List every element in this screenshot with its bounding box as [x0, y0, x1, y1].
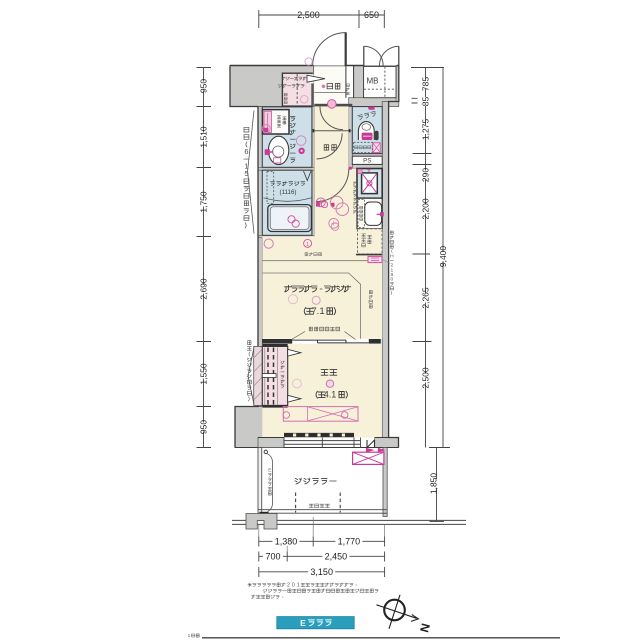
svg-text:85: 85 — [420, 97, 430, 107]
svg-text:2: 2 — [287, 582, 290, 588]
svg-text:1,850: 1,850 — [428, 473, 438, 495]
svg-text:0: 0 — [292, 582, 295, 588]
svg-text:290: 290 — [420, 168, 430, 182]
svg-text:785: 785 — [420, 77, 430, 91]
svg-text:0: 0 — [391, 277, 394, 283]
svg-text:950: 950 — [198, 420, 208, 434]
svg-text:MB: MB — [367, 77, 379, 86]
svg-text:700: 700 — [265, 551, 280, 561]
svg-text:1: 1 — [297, 582, 300, 588]
svg-text:7.1: 7.1 — [311, 306, 324, 317]
svg-text:1,750: 1,750 — [198, 191, 208, 213]
svg-text:1,550: 1,550 — [198, 363, 208, 385]
svg-text:3,150: 3,150 — [310, 567, 333, 577]
svg-text:6: 6 — [244, 147, 248, 156]
svg-text:2,200: 2,200 — [420, 198, 430, 220]
svg-text:1,380: 1,380 — [275, 536, 298, 546]
svg-text:H: H — [390, 253, 394, 259]
svg-text:2,690: 2,690 — [198, 278, 208, 300]
svg-text:9,400: 9,400 — [438, 246, 448, 268]
svg-text:PS: PS — [363, 157, 371, 164]
svg-text:5: 5 — [244, 169, 248, 178]
svg-text:(1116): (1116) — [280, 189, 297, 196]
svg-text:1,275: 1,275 — [420, 119, 430, 141]
svg-text:2,450: 2,450 — [325, 551, 348, 561]
svg-text:1,770: 1,770 — [338, 536, 361, 546]
svg-text:950: 950 — [198, 79, 208, 93]
svg-text:4.1: 4.1 — [324, 390, 337, 400]
svg-text:1: 1 — [188, 633, 191, 639]
svg-text:E: E — [300, 618, 306, 628]
svg-text:1: 1 — [306, 242, 309, 248]
svg-text:2,265: 2,265 — [420, 287, 430, 309]
svg-text:1,510: 1,510 — [198, 126, 208, 148]
svg-text:2,500: 2,500 — [420, 367, 430, 389]
